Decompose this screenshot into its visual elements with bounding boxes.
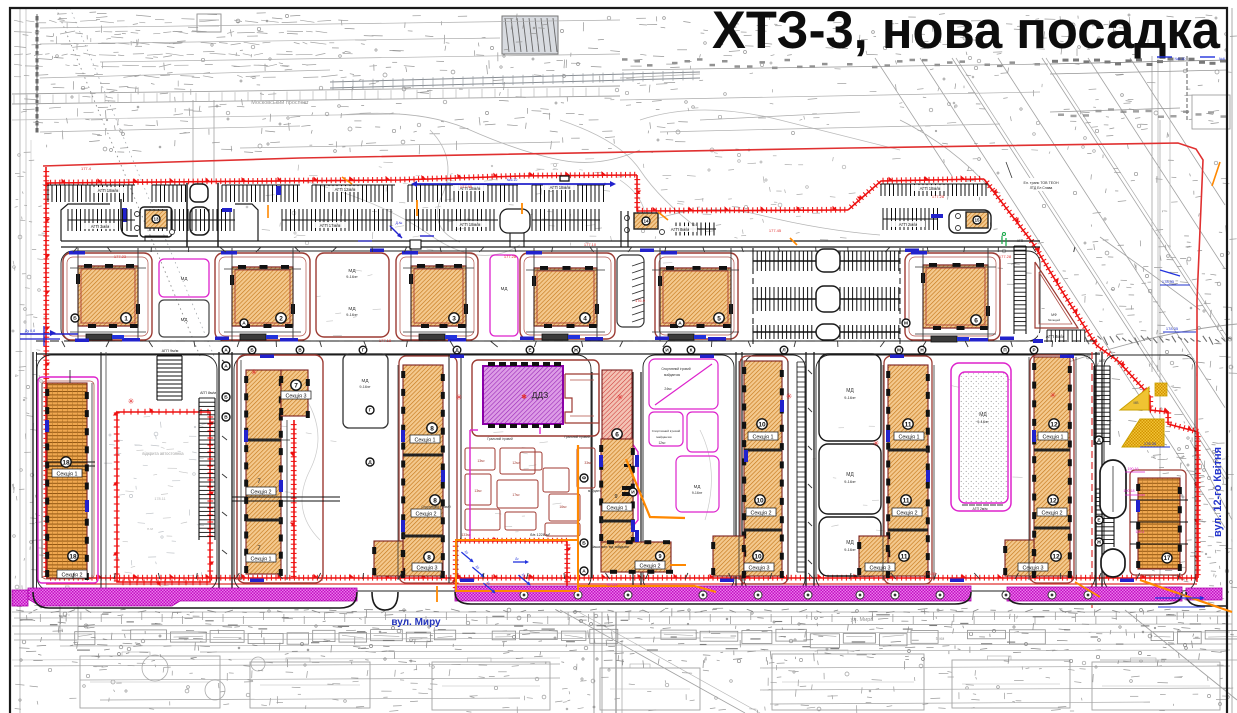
svg-text:177.45: 177.45 (769, 228, 782, 233)
svg-text:МД: МД (181, 317, 188, 322)
svg-text:Г: Г (362, 348, 365, 353)
svg-text:12: 12 (1052, 553, 1060, 560)
svg-text:✳: ✳ (251, 368, 258, 377)
svg-text:177.28: 177.28 (504, 254, 517, 259)
svg-text:МД: МД (846, 388, 854, 394)
svg-text:МД: МД (181, 276, 188, 281)
svg-text:МД: МД (846, 540, 854, 546)
svg-text:9-16эт: 9-16эт (977, 419, 989, 424)
svg-text:Секція 1: Секція 1 (607, 506, 628, 512)
svg-text:17: 17 (1164, 556, 1171, 562)
svg-text:190.1: 190.1 (1136, 530, 1145, 534)
svg-text:✳: ✳ (617, 393, 624, 402)
svg-text:АГП 18м/м: АГП 18м/м (920, 186, 941, 191)
svg-text:Секція 1: Секція 1 (753, 435, 774, 441)
svg-text:Секція 3: Секція 3 (749, 566, 770, 572)
svg-text:16м²: 16м² (559, 505, 567, 509)
svg-text:3: 3 (452, 315, 456, 322)
svg-text:АГП 3м/м: АГП 3м/м (91, 224, 110, 229)
svg-text:Л: Л (782, 348, 785, 353)
svg-text:А: А (582, 569, 586, 575)
svg-text:Секція 1: Секція 1 (251, 557, 272, 563)
svg-text:9-16эт: 9-16эт (346, 312, 358, 317)
svg-text:14: 14 (643, 219, 649, 224)
svg-text:АГП 17м/м: АГП 17м/м (320, 223, 341, 228)
svg-text:Д: Д (1097, 438, 1101, 444)
svg-text:АГП 8м/м: АГП 8м/м (671, 227, 690, 232)
svg-text:9-16эт: 9-16эт (844, 547, 856, 552)
svg-text:✳: ✳ (1050, 391, 1057, 400)
svg-text:Д-№: Д-№ (396, 221, 403, 225)
svg-text:9-16эт: 9-16эт (844, 479, 856, 484)
svg-text:МВ: МВ (1133, 401, 1139, 405)
svg-text:10: 10 (756, 497, 764, 504)
svg-text:И: И (665, 348, 668, 353)
svg-text:МГ119: МГ119 (607, 583, 618, 587)
svg-text:Секція 3: Секція 3 (870, 566, 891, 572)
svg-text:177.10: 177.10 (584, 242, 597, 247)
svg-text:5: 5 (717, 315, 721, 322)
svg-text:18: 18 (69, 553, 77, 560)
svg-text:В: В (224, 415, 228, 421)
svg-text:МД: МД (979, 412, 987, 418)
svg-text:Ду 100: Ду 100 (1175, 593, 1185, 597)
svg-text:АГП 9м/м: АГП 9м/м (162, 349, 179, 353)
svg-text:177.0: 177.0 (235, 576, 246, 581)
svg-text:К: К (690, 348, 693, 353)
svg-text:Спортивний ігровий: Спортивний ігровий (652, 429, 681, 433)
svg-text:13: 13 (153, 217, 159, 222)
svg-text:Секція 1: Секція 1 (899, 435, 920, 441)
svg-text:АГП 2м/м: АГП 2м/м (899, 222, 918, 227)
svg-text:177.4: 177.4 (81, 166, 92, 171)
svg-text:9: 9 (658, 554, 661, 560)
svg-text:АГП 12м/м: АГП 12м/м (335, 187, 356, 192)
svg-text:178.35: 178.35 (1144, 441, 1157, 446)
svg-text:33м²: 33м² (584, 461, 592, 465)
svg-text:133м²: 133м² (461, 533, 471, 537)
svg-text:10: 10 (754, 553, 762, 560)
svg-text:9-16эт: 9-16эт (844, 395, 856, 400)
svg-text:Секція 3: Секція 3 (1023, 566, 1044, 572)
svg-text:11: 11 (903, 497, 910, 504)
svg-text:Гральний ігровий: Гральний ігровий (487, 437, 513, 441)
svg-text:Ж: Ж (573, 348, 579, 353)
svg-text:6: 6 (615, 431, 619, 438)
svg-text:24м²: 24м² (664, 387, 672, 391)
svg-text:8: 8 (433, 497, 437, 504)
svg-text:№6: №6 (1219, 57, 1225, 61)
svg-text:Московський проспект: Московський проспект (251, 99, 309, 106)
svg-text:Секція 1: Секція 1 (415, 438, 436, 444)
svg-text:М: М (897, 348, 901, 353)
svg-text:177.95: 177.95 (460, 184, 473, 189)
svg-text:майданчик: майданчик (656, 435, 672, 439)
svg-text:Ду: Ду (515, 557, 519, 561)
svg-text:Секція 2: Секція 2 (62, 573, 83, 579)
svg-text:Гральний ігровий: Гральний ігровий (564, 435, 590, 439)
svg-text:МФ: МФ (1051, 313, 1057, 317)
svg-text:Секція 3: Секція 3 (417, 566, 438, 572)
svg-text:Секція 2: Секція 2 (897, 511, 918, 517)
svg-text:МД: МД (501, 286, 508, 291)
svg-text:МД: МД (846, 472, 854, 478)
svg-text:Чаша мин. від забудови: Чаша мин. від забудови (591, 545, 629, 549)
svg-text:12: 12 (1050, 421, 1058, 428)
svg-text:8: 8 (430, 425, 434, 432)
svg-text:Б: Б (224, 395, 228, 401)
svg-text:МД: МД (694, 484, 701, 489)
svg-text:190.16: 190.16 (1128, 467, 1139, 471)
svg-text:17м²: 17м² (512, 493, 520, 497)
svg-text:Секція 3: Секція 3 (286, 394, 307, 400)
svg-text:ул. Мира: ул. Мира (851, 617, 875, 623)
svg-text:177.23: 177.23 (114, 254, 127, 259)
svg-text:АГП 18м/м: АГП 18м/м (98, 188, 119, 193)
svg-text:Ф: Ф (582, 476, 586, 482)
svg-text:✱: ✱ (521, 393, 527, 401)
svg-text:177.28: 177.28 (932, 194, 945, 199)
svg-text:176.95: 176.95 (924, 571, 937, 576)
svg-text:МД: МД (362, 378, 370, 383)
svg-text:Р: Р (1032, 348, 1035, 353)
svg-text:✳: ✳ (456, 393, 463, 402)
svg-text:176.9: 176.9 (635, 298, 646, 303)
svg-text:АГП 18м/м: АГП 18м/м (460, 222, 481, 227)
svg-text:✳: ✳ (786, 392, 793, 401)
svg-text:АГП 2м/м: АГП 2м/м (973, 507, 989, 511)
svg-text:18: 18 (62, 459, 70, 466)
svg-text:відкрита автостоянка: відкрита автостоянка (142, 451, 184, 456)
svg-text:п.м: п.м (147, 527, 153, 531)
svg-text:13м²: 13м² (474, 489, 482, 493)
svg-text:178.11: 178.11 (154, 497, 165, 501)
svg-text:ХТЗ-3, нова посадка: ХТЗ-3, нова посадка (712, 1, 1221, 60)
svg-text:10: 10 (758, 421, 766, 428)
svg-text:АГП 8м/м: АГП 8м/м (200, 391, 216, 395)
svg-text:Б: Б (582, 541, 586, 547)
svg-text:Секція 2: Секція 2 (640, 564, 661, 570)
svg-text:Секція 2: Секція 2 (1042, 511, 1063, 517)
svg-text:№6.10: №6.10 (507, 178, 518, 182)
svg-text:6: 6 (974, 317, 978, 324)
svg-text:9-16эт: 9-16эт (359, 385, 370, 389)
svg-text:5 км: 5 км (936, 636, 945, 641)
svg-text:12м²: 12м² (512, 461, 520, 465)
svg-text:9: 9 (614, 494, 617, 500)
svg-text:177.28: 177.28 (999, 254, 1012, 259)
svg-text:Спортивний ігровий: Спортивний ігровий (421, 505, 451, 509)
svg-text:9-16эт: 9-16эт (346, 274, 358, 279)
svg-text:АГП 18м/м: АГП 18м/м (550, 185, 571, 190)
svg-text:АГП: АГП (1017, 239, 1024, 243)
svg-text:8: 8 (427, 554, 431, 561)
svg-text:Секція 1: Секція 1 (1043, 435, 1064, 441)
svg-text:№людей: №людей (1048, 318, 1061, 322)
svg-text:Секція 2: Секція 2 (751, 511, 772, 517)
svg-text:Е: Е (528, 348, 531, 353)
svg-text:Спортивний ігровий: Спортивний ігровий (661, 367, 691, 371)
svg-text:АГП: АГП (1099, 359, 1106, 363)
svg-text:Ду 0,8: Ду 0,8 (25, 329, 35, 333)
svg-text:№6.10: №6.10 (1175, 57, 1186, 61)
svg-text:1: 1 (124, 315, 128, 322)
svg-text:2: 2 (279, 315, 283, 322)
svg-text:Секція 1: Секція 1 (57, 472, 78, 478)
svg-text:Секція 2: Секція 2 (251, 490, 272, 496)
svg-text:А: А (224, 364, 228, 370)
svg-text:190.18: 190.18 (1124, 489, 1135, 493)
svg-text:ДДЗ: ДДЗ (532, 390, 549, 400)
svg-text:11: 11 (905, 421, 912, 428)
svg-text:Секція 2: Секція 2 (416, 512, 437, 518)
svg-text:178.35: 178.35 (1162, 279, 1175, 284)
svg-text:178.35: 178.35 (1166, 326, 1179, 331)
svg-text:Ж: Ж (1096, 540, 1102, 546)
svg-text:177.18: 177.18 (379, 338, 392, 343)
svg-text:15: 15 (974, 218, 980, 223)
svg-text:майданчик: майданчик (664, 373, 681, 377)
svg-text:✳: ✳ (873, 439, 880, 448)
svg-text:7: 7 (294, 382, 298, 389)
svg-text:12м²: 12м² (658, 441, 666, 445)
svg-text:✳: ✳ (128, 397, 135, 406)
svg-text:11: 11 (901, 553, 908, 560)
svg-text:9-16эт: 9-16эт (692, 491, 703, 495)
svg-text:4: 4 (583, 315, 587, 322)
svg-text:П: П (1003, 348, 1006, 353)
svg-text:12: 12 (1049, 497, 1057, 504)
svg-text:13м²: 13м² (477, 459, 485, 463)
